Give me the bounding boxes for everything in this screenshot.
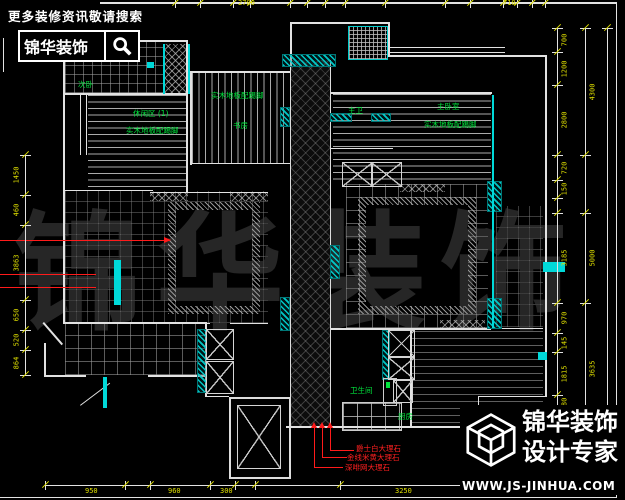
wall-segment — [80, 95, 81, 155]
cyan-wall — [372, 114, 390, 121]
kitchen-fixture — [147, 62, 154, 68]
dimension-value: 2700 — [238, 0, 255, 7]
red-leader-line — [0, 287, 96, 288]
wall-segment — [390, 47, 505, 48]
red-leader-line — [330, 428, 331, 450]
dimension-value: 1200 — [562, 60, 569, 77]
dimension-value: 3863 — [14, 254, 21, 271]
wall-segment — [331, 92, 492, 94]
wall-segment — [478, 396, 547, 397]
red-leader-line — [322, 428, 323, 458]
sheet-border-bottom — [0, 497, 617, 498]
duct-shaft — [388, 330, 415, 357]
dimension-value: 4300 — [590, 83, 597, 100]
red-arrowhead — [164, 237, 171, 243]
room-label: 厨房 — [398, 413, 413, 421]
dimension-line — [25, 155, 26, 375]
red-leader-line — [0, 274, 96, 275]
dimension-value: 2800 — [562, 112, 569, 129]
magnifier-icon — [104, 32, 138, 60]
wall-segment — [230, 323, 268, 324]
dimension-value: 710 — [503, 0, 516, 7]
wall-segment — [186, 71, 290, 73]
room-label: 书房 — [233, 122, 248, 130]
logo-website: WWW.JS-JINHUA.COM — [462, 479, 615, 493]
dimension-value: 520 — [14, 334, 21, 347]
wall-segment — [44, 375, 86, 377]
cove-corner-hatch — [230, 193, 268, 201]
bay-window-frame — [163, 44, 165, 94]
cube-logo-icon — [464, 411, 518, 469]
wall-segment — [290, 22, 390, 24]
logo-text-block: 锦华装饰 设计专家 — [522, 407, 622, 467]
study-wood-floor — [192, 73, 288, 163]
duct-shaft — [388, 357, 415, 380]
wall-segment — [63, 322, 207, 324]
bay-window-frame — [188, 44, 190, 94]
material-callout: 爵士白大理石 — [356, 445, 401, 453]
cove-corner-hatch — [150, 193, 188, 201]
top-left-logo: 更多装修资讯敬请搜索 锦华装饰 — [8, 6, 140, 64]
cove-corner-hatch — [440, 320, 485, 328]
cyan-wall — [331, 114, 351, 121]
dimension-value: 3635 — [590, 360, 597, 377]
floorplan-canvas: 锦华装饰 — [0, 0, 625, 500]
dimension-value: 650 — [14, 309, 21, 322]
wall-segment — [63, 93, 188, 95]
dimension-value: 1815 — [562, 365, 569, 382]
wall-segment — [545, 55, 547, 397]
corridor-tile-pattern — [290, 60, 331, 426]
room-label: 主卧室 — [437, 103, 460, 111]
dimension-value: 864 — [14, 356, 21, 369]
brand-box: 锦华装饰 — [18, 30, 140, 62]
cyan-wall — [488, 182, 501, 211]
room-label: 主卫 — [348, 107, 363, 115]
room-label: 实木地板配踢脚 — [126, 127, 179, 135]
entry-door-leaf — [103, 377, 107, 408]
red-leader-line — [322, 457, 347, 458]
logo-brand: 锦华装饰 — [522, 407, 622, 437]
wall-segment — [207, 396, 229, 397]
room-label: 次卧 — [78, 81, 93, 89]
cyan-wall — [283, 55, 335, 66]
dimension-value: 300 — [220, 488, 233, 495]
dimension-line — [100, 3, 616, 4]
bay-window-hatch — [165, 44, 186, 93]
skylight-grid — [348, 26, 388, 60]
wall-segment — [390, 52, 505, 53]
balcony-partition — [492, 95, 494, 328]
dimension-highlight — [538, 352, 547, 360]
dimension-value: 720 — [562, 161, 569, 174]
wall-segment — [86, 95, 87, 155]
wall-segment — [63, 190, 153, 191]
material-callout: 深啡网大理石 — [345, 464, 390, 472]
cyan-wall — [331, 246, 339, 278]
dimension-line — [585, 28, 586, 434]
room-label: 卫生间 — [350, 387, 373, 395]
wall-segment — [190, 73, 192, 165]
wall-segment — [496, 328, 543, 329]
room-label: 实木地板配踢脚 — [424, 121, 477, 129]
brand-name: 锦华装饰 — [20, 34, 104, 58]
red-leader-line — [314, 428, 315, 468]
red-leader-line — [330, 450, 354, 451]
duct-shaft — [206, 329, 234, 360]
dimension-value: 700 — [562, 34, 569, 47]
cove-corner-hatch — [400, 184, 445, 192]
bottom-right-logo: 锦华装饰 设计专家 WWW.JS-JINHUA.COM — [460, 405, 622, 495]
dimension-value: 950 — [85, 488, 98, 495]
dimension-value: 460 — [14, 204, 21, 217]
dimension-value: 3250 — [395, 488, 412, 495]
dimension-value: 145 — [562, 336, 569, 349]
material-callout: 金线米黄大理石 — [347, 454, 400, 462]
red-arrowhead — [319, 422, 325, 428]
wall-segment — [331, 148, 393, 149]
dimension-line — [557, 28, 558, 434]
wall-segment — [388, 55, 547, 57]
fixture-mark — [386, 382, 390, 388]
dimension-value: 5000 — [590, 250, 597, 267]
room-label: 休闲区 (1) — [133, 110, 169, 118]
dimension-value: 970 — [562, 312, 569, 325]
dimension-value: 1450 — [14, 167, 21, 184]
wardrobe — [371, 162, 402, 187]
cyan-wall — [198, 330, 206, 392]
cyan-wall — [281, 108, 289, 126]
wall-segment — [3, 38, 4, 72]
door-leaf — [114, 260, 121, 305]
dimension-value: 960 — [168, 488, 181, 495]
elevator-car — [237, 405, 281, 469]
dimension-value: 3185 — [562, 250, 569, 267]
cyan-wall — [488, 299, 501, 328]
wall-segment — [63, 40, 65, 324]
wall-segment — [150, 192, 268, 193]
duct-shaft — [206, 361, 234, 394]
wall-segment — [190, 163, 290, 164]
red-arrowhead — [311, 422, 317, 428]
logo-tagline: 设计专家 — [522, 437, 622, 467]
red-leader-line — [314, 467, 343, 468]
wardrobe — [342, 162, 373, 187]
room-label: 实木地板配踢脚 — [211, 92, 264, 100]
dimension-value: 150 — [562, 183, 569, 196]
wall-segment — [44, 343, 46, 377]
search-slogan: 更多装修资讯敬请搜索 — [8, 6, 140, 25]
cyan-wall — [281, 298, 289, 330]
red-arrowhead — [327, 422, 333, 428]
